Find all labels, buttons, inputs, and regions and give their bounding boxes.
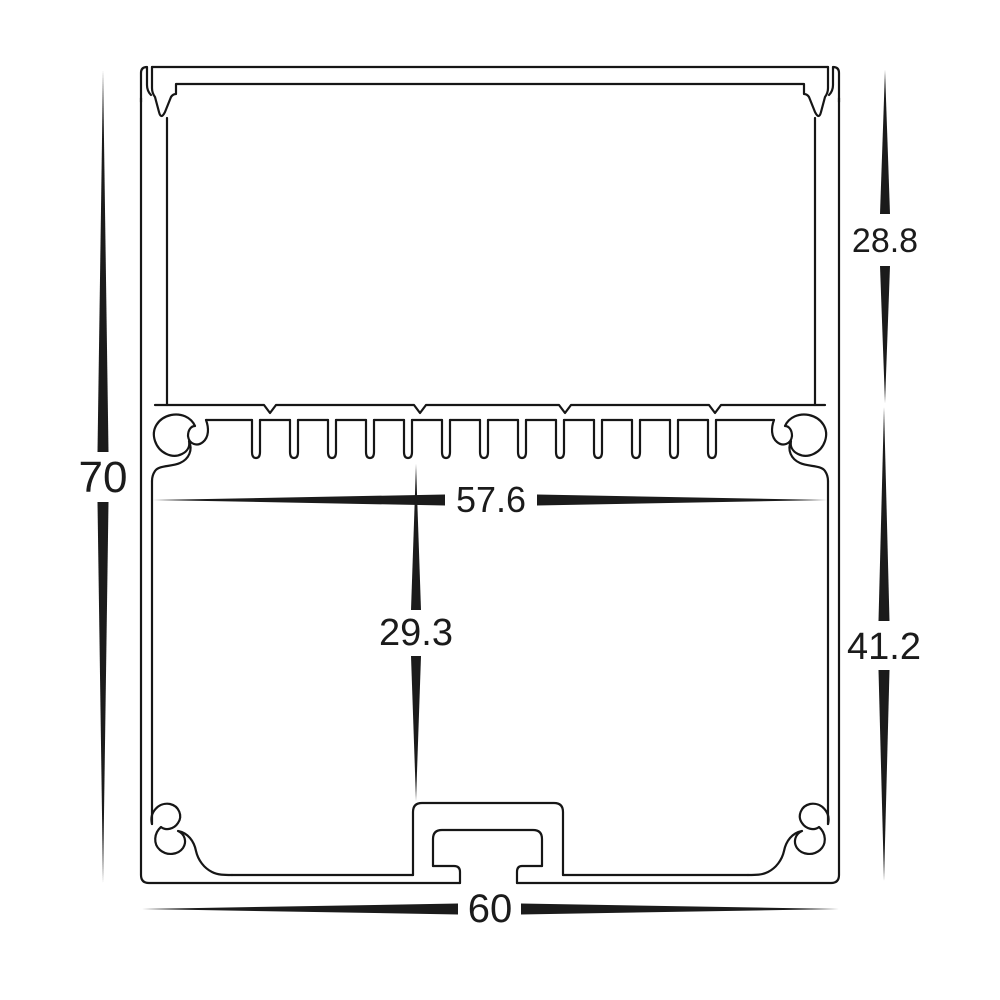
dim-arrow-overall-width-right (521, 904, 839, 915)
dim-arrow-bottom-section-up (879, 407, 890, 621)
dim-arrow-top-section-down (880, 266, 890, 403)
drawing-canvas: 70 28.8 41.2 57.6 29.3 60 (0, 0, 1000, 1000)
dim-arrow-overall-height-bottom (98, 502, 109, 883)
profile-drawing: 70 28.8 41.2 57.6 29.3 60 (0, 0, 1000, 1000)
screw-boss-bottom-right (748, 804, 829, 875)
dim-arrow-cavity-height-top (411, 464, 421, 610)
mount-channel-lip-left (433, 866, 460, 883)
dim-arrow-overall-height-top (98, 70, 109, 452)
screw-boss-bottom-left (151, 804, 232, 875)
dim-arrow-inner-width-left (153, 495, 445, 506)
mount-bump-outer (413, 803, 563, 875)
inner-ceiling-and-clip-barbs (152, 67, 828, 116)
profile-outline (141, 67, 839, 883)
dim-arrow-top-section-up (880, 70, 890, 214)
dimension-annotations: 70 28.8 41.2 57.6 29.3 60 (79, 70, 921, 931)
dim-label-inner-width: 57.6 (456, 479, 526, 520)
dim-arrow-cavity-height-bottom (411, 656, 421, 801)
heatsink-fins (252, 420, 716, 458)
dim-label-inner-cavity-height: 29.3 (379, 612, 453, 654)
mount-channel-inner (433, 830, 542, 866)
dim-label-overall-width: 60 (468, 887, 513, 931)
dim-arrow-bottom-section-down (879, 670, 890, 881)
dim-arrow-inner-width-right (537, 495, 827, 506)
dim-label-top-section-height: 28.8 (852, 222, 918, 260)
screw-boss-mid-right (772, 414, 828, 481)
top-right-lip (829, 67, 839, 102)
mount-channel-lip-right (517, 866, 542, 883)
top-left-lip (141, 67, 151, 102)
dim-label-bottom-section-height: 41.2 (847, 626, 921, 668)
led-plate-top (155, 405, 825, 413)
dim-arrow-overall-width-left (142, 904, 458, 915)
screw-boss-mid-left (152, 414, 208, 481)
dim-label-overall-height: 70 (79, 453, 128, 502)
